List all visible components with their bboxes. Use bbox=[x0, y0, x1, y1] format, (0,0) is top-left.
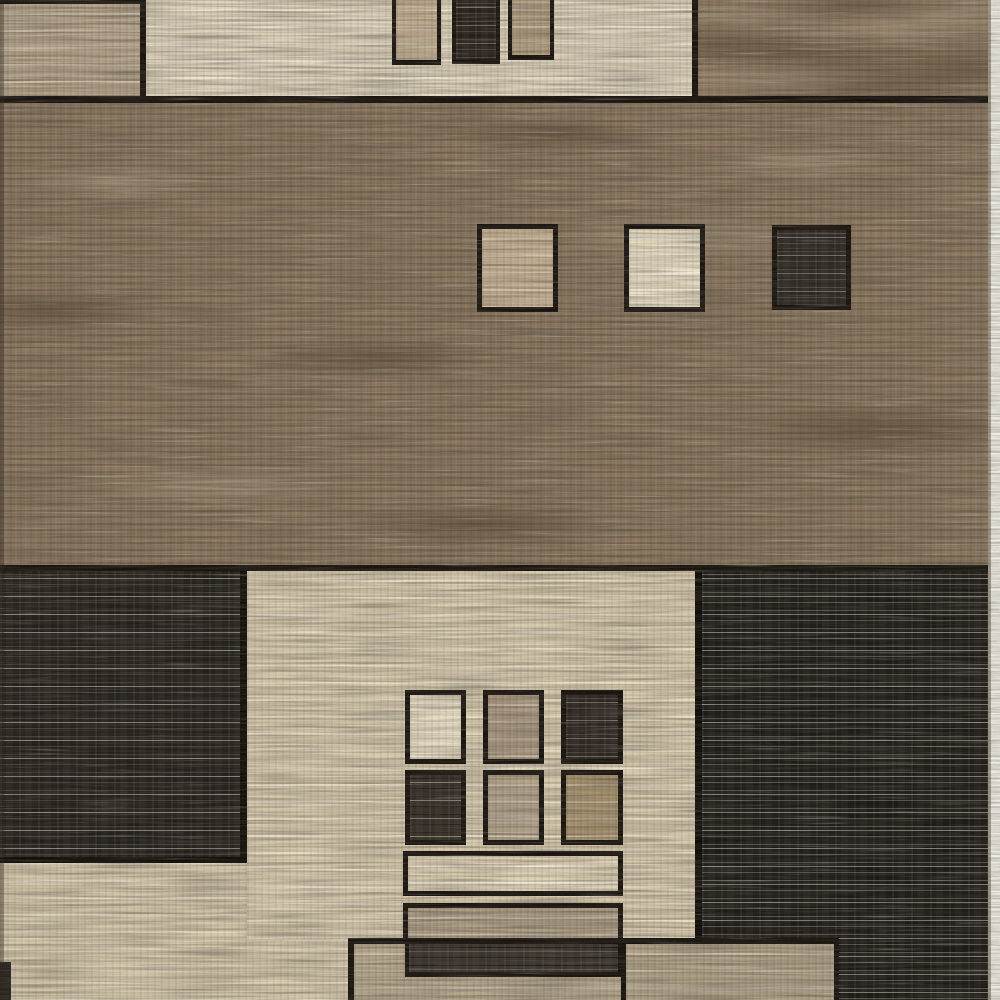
grid-square-dark bbox=[561, 690, 623, 764]
middle-square-cream bbox=[624, 224, 705, 312]
top-left-striped-block bbox=[0, 0, 146, 97]
bottom-right-dark-block bbox=[695, 571, 988, 1000]
photo-edge-white-strip bbox=[988, 0, 1000, 1000]
rug-photo: Close-up product photo of a modern geome… bbox=[0, 0, 1000, 1000]
grid-square-charcoal bbox=[405, 770, 466, 845]
top-right-brown-block bbox=[692, 0, 1000, 98]
grid-square-tan bbox=[483, 690, 544, 764]
grid-square-tan-2 bbox=[483, 770, 544, 845]
middle-square-tan bbox=[477, 224, 558, 312]
hanging-rect-tan-left bbox=[392, 0, 441, 65]
bar-dark bbox=[405, 940, 622, 977]
hanging-rect-dark bbox=[452, 0, 500, 64]
bar-cream bbox=[403, 851, 623, 896]
hanging-rect-tan-right bbox=[508, 0, 554, 60]
grid-square-khaki bbox=[561, 770, 623, 845]
bottom-taupe-block-right bbox=[621, 938, 839, 1000]
bottom-left-dark-block bbox=[0, 571, 247, 863]
left-edge-shade bbox=[0, 0, 4, 1000]
middle-square-dark bbox=[772, 225, 851, 310]
grid-square-cream bbox=[405, 690, 466, 764]
middle-brown-field bbox=[0, 96, 1000, 572]
divider-line-top bbox=[0, 96, 1000, 103]
